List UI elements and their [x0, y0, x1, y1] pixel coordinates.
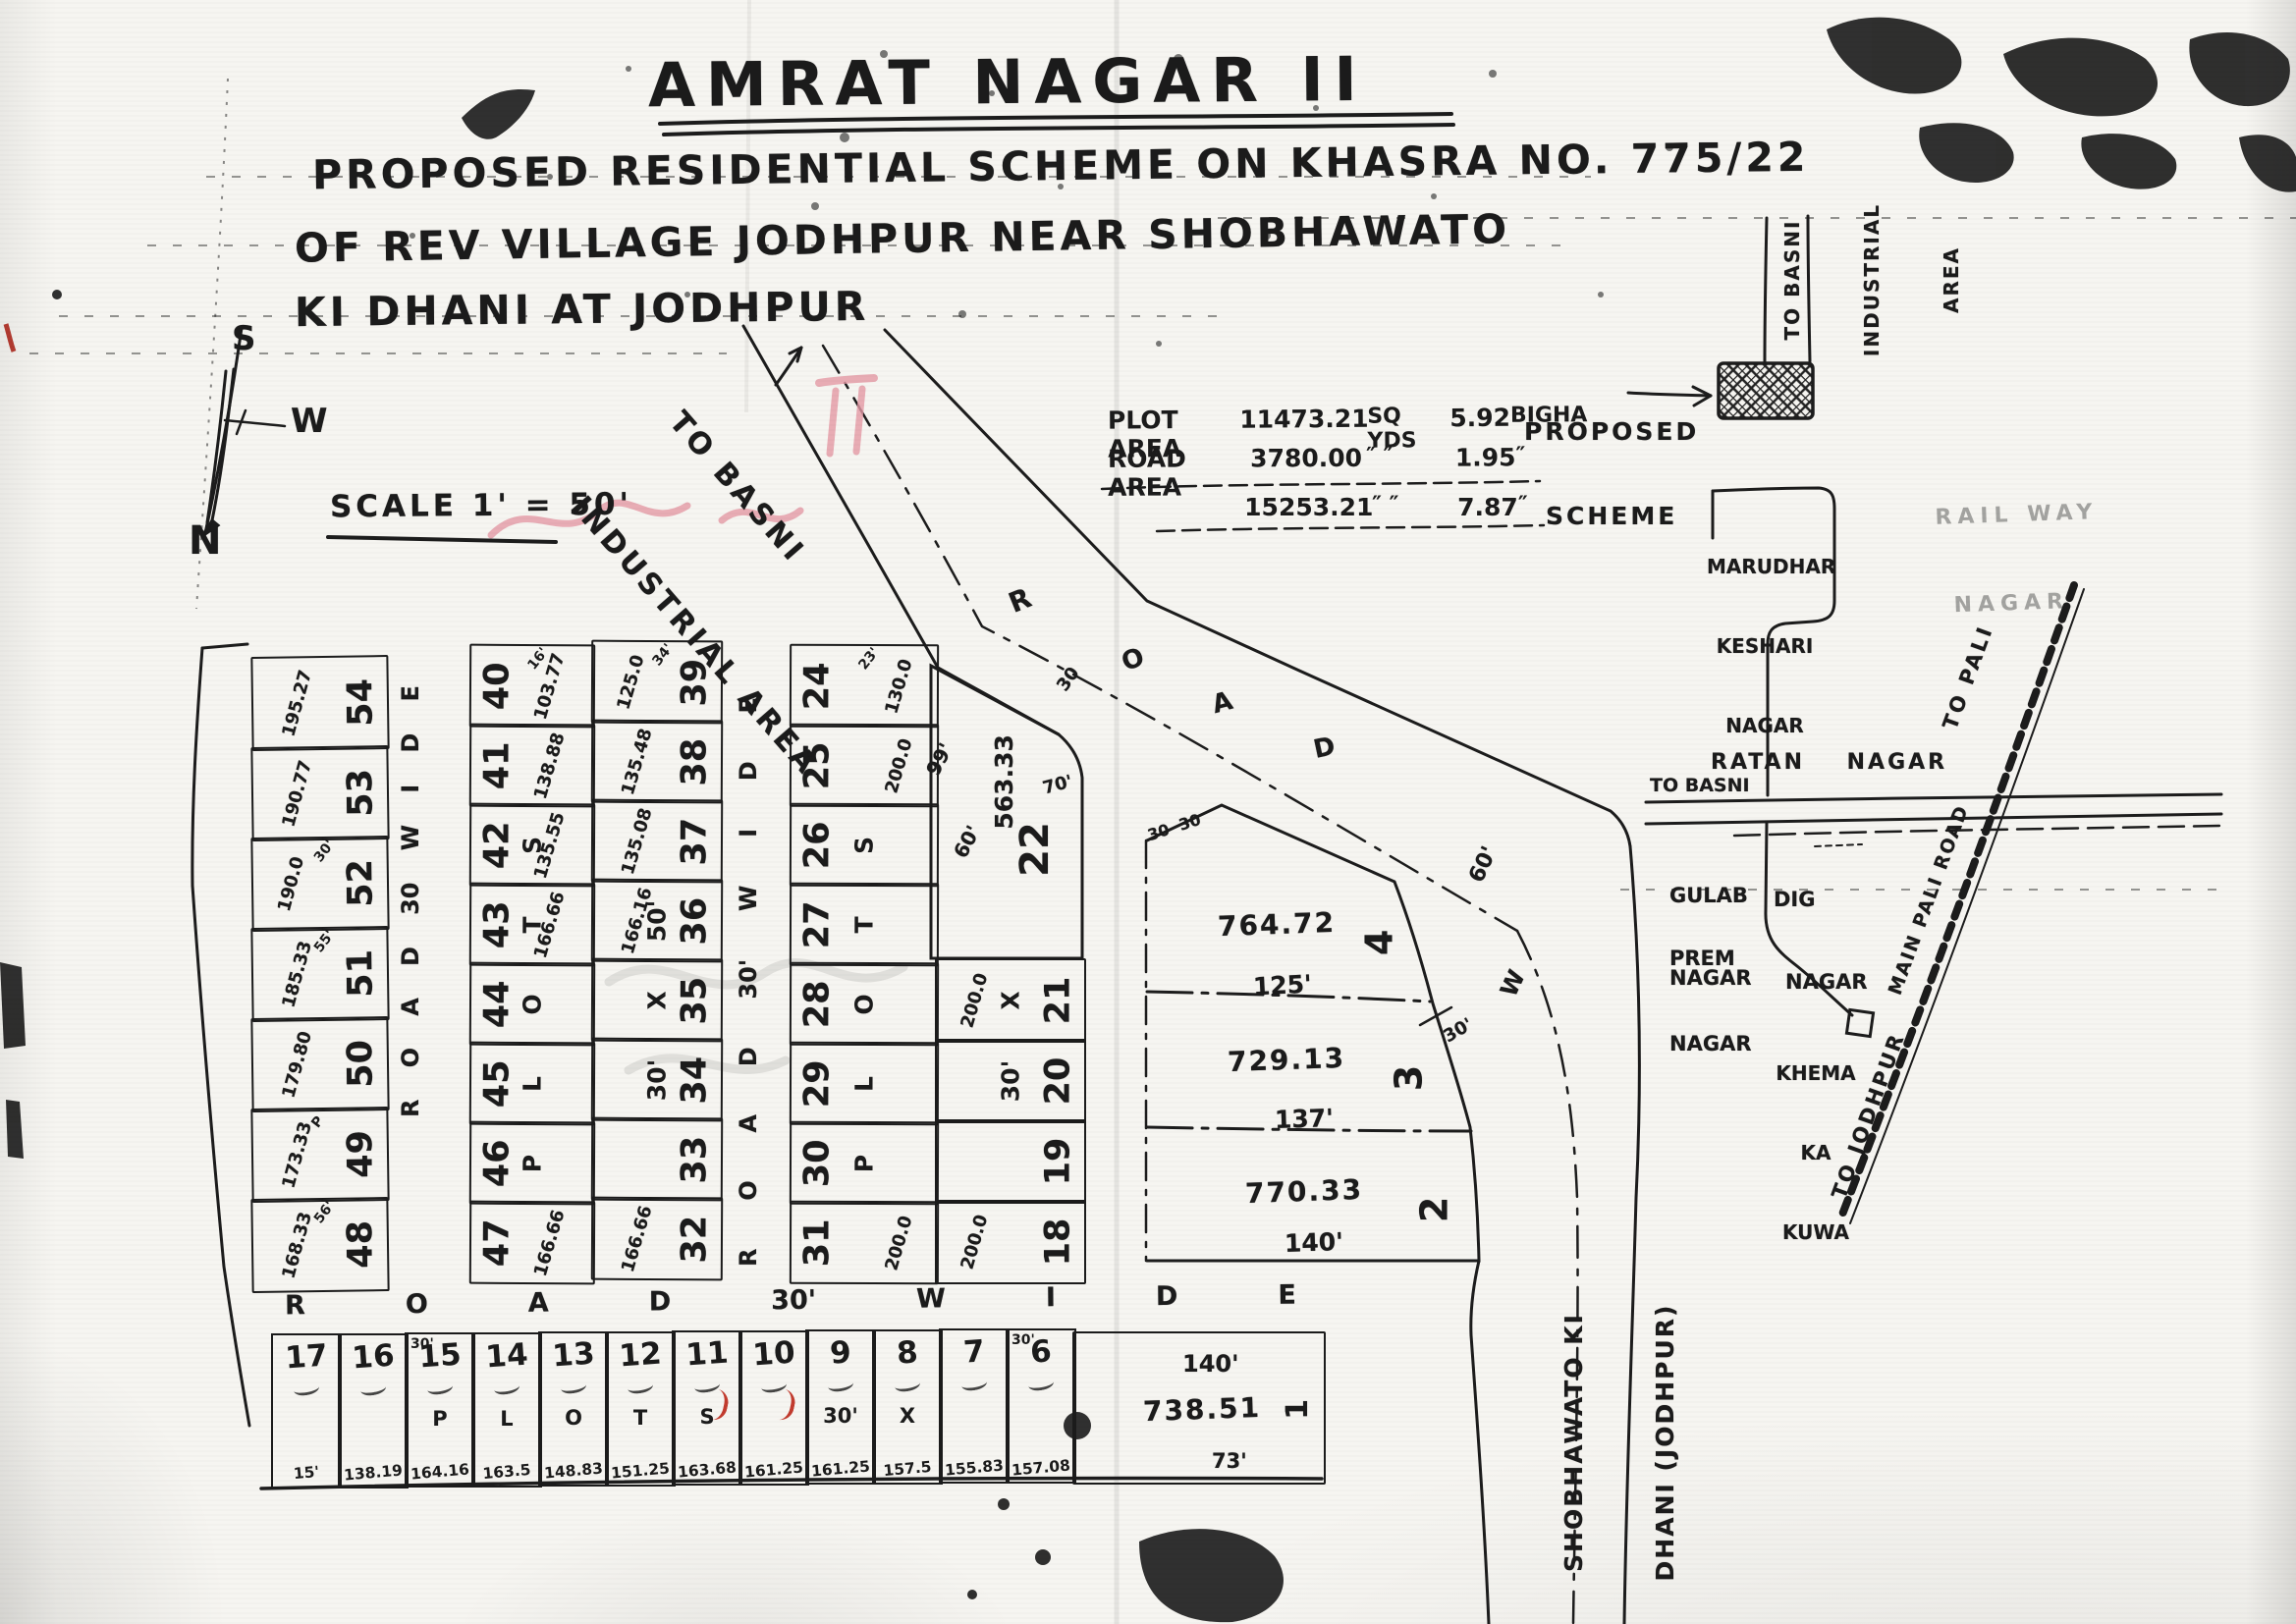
plot-number: 40: [477, 662, 517, 710]
plot-number: 10: [751, 1334, 796, 1373]
plot-number: 14: [484, 1336, 529, 1375]
plot-area: 125.0: [613, 652, 648, 712]
plot-cell-7: 7155.83: [939, 1328, 1010, 1484]
sketch-label-line: MARUDHAR: [1707, 554, 1823, 580]
plot-number: 13: [551, 1336, 596, 1375]
sketch-label-line: KUWA: [1774, 1219, 1858, 1246]
plot-number: 7: [962, 1333, 986, 1370]
plot-dimension-mark: 30': [1011, 1332, 1035, 1348]
plot-number: 19: [1039, 1138, 1078, 1186]
plot-4-area: 764.72: [1217, 907, 1336, 943]
road-label-letter: R: [735, 1249, 762, 1267]
plot-number: 30: [797, 1139, 837, 1187]
prem-nagar-label: PREM NAGAR: [1669, 888, 1752, 1115]
plot-letter: X: [900, 1404, 915, 1428]
red-pen-mark: [772, 1387, 797, 1422]
plot-number: 9: [829, 1334, 852, 1371]
plot-cell-39: 39125.034': [591, 640, 723, 725]
hand-tick-mark: [293, 1380, 320, 1397]
plot-2-area: 770.33: [1244, 1174, 1363, 1210]
plot-area: 155.83: [944, 1456, 1004, 1479]
plot-letter: T: [633, 1406, 647, 1430]
road-label-letter: O: [406, 1288, 428, 1319]
road-label-letter: W: [397, 825, 424, 850]
scanned-map-sheet: AMRAT NAGAR II PROPOSED RESIDENTIAL SCHE…: [0, 0, 2296, 1624]
plot-letter: X: [997, 991, 1025, 1009]
sketch-label-line: KESHARI: [1707, 633, 1823, 660]
plot-number: 52: [341, 859, 381, 907]
plot-number: 33: [676, 1135, 715, 1183]
plot-number: 17: [284, 1338, 329, 1377]
road-label-letter: 30': [735, 959, 762, 1000]
road-label-letter: O: [397, 1048, 424, 1067]
plot-cell-19: 19: [935, 1119, 1086, 1204]
road-label-letter: E: [397, 685, 424, 701]
hand-tick-mark: [894, 1376, 921, 1392]
proposed-scheme-line2: SCHEME: [1546, 503, 1699, 531]
road-label-letter: A: [397, 998, 424, 1016]
plot-area: 179.80: [278, 1029, 315, 1101]
plot-cell-30: 30P: [790, 1121, 939, 1206]
plot-cell-10: 10161.25: [738, 1330, 809, 1486]
plot-area: 161.25: [810, 1457, 870, 1480]
plot-cell-31: 31200.0: [790, 1201, 939, 1285]
plot-letter: P: [849, 1154, 878, 1171]
plot-22-area: 563.33: [991, 734, 1019, 829]
plot-area: 148.83: [543, 1459, 603, 1482]
plot-letter: 30': [642, 1058, 671, 1101]
plot-number: 48: [341, 1220, 381, 1269]
plot-number: 29: [797, 1059, 837, 1108]
red-pen-mark: [705, 1387, 731, 1422]
plot-number: 26: [797, 821, 837, 869]
plot-3-area: 729.13: [1227, 1043, 1345, 1078]
plot-number: 37: [676, 817, 715, 865]
road-label-letter: E: [1278, 1279, 1296, 1310]
plot-number: 45: [477, 1059, 517, 1108]
plot-area: 138.88: [529, 730, 569, 801]
area-row-unit: ″ ″: [1366, 444, 1455, 487]
road-label-letter: O: [735, 1180, 762, 1200]
road-label-line: INDUSTRIAL: [1859, 162, 1886, 398]
plot-letter: O: [565, 1406, 582, 1430]
plot-number: 34: [676, 1056, 715, 1104]
plot-area: 151.25: [610, 1459, 670, 1482]
hand-tick-mark: [560, 1379, 587, 1395]
marudhar-keshari-nagar-label: MARUDHAR KESHARI NAGAR: [1707, 501, 1823, 792]
plot-area: 168.33: [278, 1210, 315, 1281]
sketch-label-line: NAGAR: [1785, 968, 1868, 996]
plot-4-width: 125': [1252, 970, 1312, 1001]
proposed-scheme-label: PROPOSED SCHEME: [1524, 361, 1699, 587]
plot-cell-9: 930'161.25: [805, 1329, 876, 1485]
area-row-value: 11473.21: [1239, 405, 1367, 445]
area-row-value: 3780.00: [1250, 444, 1366, 487]
road-label-letter: D: [735, 1047, 762, 1066]
plot-1-bottom-dim: 73': [1212, 1449, 1247, 1473]
road-label-letter: D: [735, 761, 762, 781]
plot-cell-27: 27T: [790, 883, 939, 967]
plot-dimension-mark: 30': [311, 838, 338, 866]
plot-cell-28: 28O: [790, 962, 939, 1047]
plot-1-area: 738.51: [1142, 1392, 1261, 1428]
road-label-letter: 30: [397, 883, 424, 915]
road-label-letter: I: [735, 829, 762, 838]
area-table-row: ROAD AREA 3780.00 ″ ″ 1.95 ″: [1108, 443, 1569, 488]
road-label-line: AREA: [1939, 162, 1965, 398]
plot-number: 20: [1039, 1057, 1078, 1106]
plot-cell-8: 8X157.5: [872, 1329, 943, 1485]
plot-cell-38: 38135.48: [591, 720, 723, 804]
plot-cell-46: 46P: [469, 1121, 595, 1206]
plot-cell-35: 35X: [591, 958, 723, 1043]
plot-letter: X: [642, 991, 671, 1009]
plot-dimension-mark: 34': [649, 641, 676, 670]
road-label-letter: A: [528, 1287, 549, 1318]
hand-tick-mark: [493, 1379, 520, 1395]
road-label-letter: R: [397, 1100, 424, 1117]
plot-number: 18: [1039, 1218, 1078, 1267]
plot-number: 44: [477, 980, 517, 1028]
plot-area: 200.0: [957, 971, 993, 1031]
plot-letter: P: [518, 1154, 546, 1171]
plot-area: 130.0: [882, 656, 917, 716]
plot-letter: P: [432, 1407, 447, 1431]
plot-number: 49: [341, 1130, 381, 1178]
plot-cell-13: 13O148.83: [538, 1331, 609, 1487]
railway-nagar-label: RAIL WAY NAGAR: [1933, 439, 2104, 680]
plot-cell-11: 11S163.68: [672, 1330, 742, 1486]
compass-north-label: N: [189, 518, 221, 564]
plot-dimension-mark: 23': [855, 645, 882, 674]
road-label-letter: I: [397, 785, 424, 793]
plot-number: 28: [797, 980, 837, 1028]
plot-area: 166.66: [618, 1203, 657, 1274]
plot-letter: T: [518, 916, 546, 933]
plot-letter: L: [518, 1075, 546, 1091]
plot-area: 195.27: [278, 668, 315, 739]
hand-tick-mark: [627, 1378, 654, 1394]
proposed-scheme-line1: PROPOSED: [1524, 418, 1699, 447]
plot-area: 200.0: [882, 735, 917, 795]
plot-area: 200.0: [882, 1213, 917, 1272]
plot-cell-50: 50179.80: [250, 1016, 389, 1112]
plot-number: 25: [797, 741, 837, 789]
area-row-label: ROAD AREA: [1108, 444, 1250, 488]
plot-number: 31: [797, 1218, 837, 1267]
plot-area: 163.5: [482, 1460, 531, 1482]
area-table: PLOT AREA 11473.21 SQ YDS 5.92 BIGHA ROA…: [1108, 405, 1569, 532]
plot-number: 35: [676, 976, 715, 1024]
plot-letter: O: [849, 994, 878, 1014]
plot-cell-47: 47166.66: [469, 1201, 595, 1285]
hand-tick-mark: [1027, 1375, 1055, 1391]
plot-number: 21: [1039, 977, 1078, 1025]
road-label-letter: D: [397, 733, 424, 753]
area-row-unit: SQ YDS: [1367, 404, 1449, 444]
road-label-letter: D: [397, 947, 424, 966]
plot-cell-41: 41138.88: [469, 724, 595, 808]
area-row-label: PLOT AREA: [1108, 406, 1240, 446]
plot-cell-37: 37135.08: [591, 799, 723, 884]
plot-number: 39: [676, 658, 715, 706]
ratan-nagar-label: RATAN NAGAR: [1711, 750, 1947, 775]
plot-number: 8: [896, 1334, 919, 1371]
road-label-letter: R: [285, 1290, 305, 1321]
plot-cell-24: 24130.023': [790, 644, 939, 729]
plot-letter: O: [518, 994, 546, 1014]
plot-cell-21: 21200.0X: [935, 958, 1086, 1043]
area-row-unit: ″ ″: [1372, 493, 1457, 532]
title-line-4: KI DHANI AT JODHPUR: [295, 284, 870, 336]
plot-number: 43: [477, 900, 517, 948]
plot-area: 15': [293, 1463, 320, 1483]
hand-tick-mark: [960, 1376, 988, 1392]
road-label-line: SHOBHAWATO KI: [1558, 1256, 1589, 1624]
plot-cell-25: 25200.0: [790, 724, 939, 808]
road-label-letter: D: [1156, 1280, 1178, 1311]
plot-letter: 30': [997, 1060, 1025, 1102]
red-margin-mark: [6, 324, 14, 352]
plot-area: 166.66: [529, 1207, 569, 1278]
plot-3-number: 3: [1388, 1065, 1431, 1091]
plot-2-number: 2: [1413, 1197, 1456, 1222]
plot-letter: T: [849, 916, 878, 933]
road-30-wide-label-vertical-2: ROAD30'WIDE: [729, 697, 768, 1267]
area-table-row: PLOT AREA 11473.21 SQ YDS 5.92 BIGHA: [1108, 403, 1569, 445]
plot-22-number: 22: [1012, 822, 1058, 877]
plot-area: 135.08: [618, 805, 657, 877]
plot-area: 135.48: [618, 726, 657, 797]
road-label-line: TO BASNI: [1779, 162, 1806, 398]
plot-cell-40: 40103.7716': [469, 644, 595, 729]
shobhawato-ki-dhani-label: SHOBHAWATO KI DHANI (JODHPUR): [1498, 1256, 1558, 1624]
area-row-bigha: 7.87: [1457, 493, 1518, 532]
map-title: AMRAT NAGAR II: [648, 44, 1368, 121]
compass-south-label: S: [232, 320, 256, 358]
plot-cell-36: 36166.1650': [591, 879, 723, 963]
plot-cell-16: 16138.19: [338, 1333, 409, 1489]
sketch-label-line: KHEMA: [1774, 1060, 1858, 1087]
plot-cell-20: 2030': [935, 1039, 1086, 1123]
plot-cell-15: 15P164.1630': [405, 1332, 475, 1488]
plot-area: 200.0: [957, 1213, 993, 1272]
road-label-letter: W: [916, 1283, 946, 1314]
road-label-letter: D: [649, 1286, 672, 1317]
plot-cell-34: 3430': [591, 1038, 723, 1122]
area-row-bigha: 5.92: [1449, 404, 1510, 443]
plot-number: 16: [351, 1337, 396, 1376]
plot-letter: S: [518, 836, 546, 853]
plot-area: 173.33: [278, 1119, 315, 1191]
sketch-label-line: RAIL WAY: [1935, 498, 2099, 533]
sketch-label-line: DIG: [1774, 886, 1868, 913]
plot-area: 190.0: [274, 854, 308, 913]
road-label-letter: E: [735, 697, 762, 713]
plot-cell-48: 48168.3356': [250, 1197, 389, 1293]
plot-number: 42: [477, 821, 517, 869]
plot-area: 161.25: [743, 1458, 803, 1481]
plot-letter: 50': [642, 899, 671, 942]
plot-cell-12: 12T151.25: [605, 1331, 676, 1487]
plot-cell-29: 29L: [790, 1042, 939, 1126]
plot-cell-44: 44O: [469, 962, 595, 1047]
plot-cell-42: 42135.55S: [469, 803, 595, 888]
plot-cell-14: 14L163.5: [471, 1332, 542, 1488]
plot-number: 51: [341, 949, 381, 998]
plot-area: 164.16: [410, 1460, 469, 1483]
hand-tick-mark: [827, 1377, 854, 1393]
plot-cell-26: 26S: [790, 803, 939, 888]
plot-number: 32: [676, 1215, 715, 1263]
plot-dimension-mark: 55': [311, 928, 338, 956]
plot-letter: L: [849, 1075, 878, 1091]
plot-cell-18: 18200.0: [935, 1200, 1086, 1284]
plot-cell-33: 33: [591, 1117, 723, 1202]
plot-1-top-dim: 140': [1182, 1351, 1238, 1379]
hand-tick-mark: [426, 1380, 454, 1396]
plot-3-width: 137': [1275, 1105, 1335, 1135]
plot-number: 12: [618, 1335, 663, 1374]
plot-dimension-mark: 56': [311, 1199, 338, 1227]
sketch-label-line: NAGAR: [1669, 1030, 1752, 1058]
plot-cell-43: 43166.66T: [469, 883, 595, 967]
sketch-label-line: PREM: [1669, 945, 1752, 973]
sketch-label-line: NAGAR: [1953, 586, 2102, 621]
plot-cell-6: 6157.0830': [1006, 1328, 1076, 1484]
sketch-label-line: NAGAR: [1707, 713, 1823, 739]
plot-number: 53: [341, 769, 381, 817]
plot-cell-51: 51185.3355': [250, 926, 389, 1022]
plot-area: 190.77: [278, 758, 315, 830]
plot-area: 163.68: [677, 1458, 737, 1481]
plot-letter: L: [500, 1407, 513, 1431]
to-basni-small-label: TO BASNI: [1650, 776, 1750, 797]
plot-area: 138.19: [343, 1461, 403, 1484]
plot-cell-49: 49173.33P: [250, 1107, 389, 1203]
plot-number: 54: [341, 678, 381, 727]
plot-number: 47: [477, 1218, 517, 1267]
plot-1-number: 1: [1282, 1399, 1316, 1420]
plot-cell-52: 52190.030': [250, 836, 389, 932]
area-row-value: 15253.21: [1244, 493, 1372, 532]
road-label-letter: I: [1046, 1282, 1056, 1313]
plot-cell-53: 53190.77: [250, 745, 389, 841]
plot-dimension-mark: 30': [410, 1336, 434, 1352]
plot-4-number: 4: [1358, 930, 1401, 955]
plot-number: 11: [684, 1335, 730, 1374]
plot-letter: S: [849, 836, 878, 853]
to-basni-industrial-area-vertical-label: TO BASNI INDUSTRIAL AREA: [1726, 162, 1809, 398]
plot-2-width: 140': [1285, 1228, 1344, 1259]
plot-number: 27: [797, 900, 837, 948]
road-label-letter: W: [735, 886, 762, 911]
plot-cell-17: 1715': [271, 1333, 342, 1489]
plot-number: 36: [676, 896, 715, 945]
plot-number: 24: [797, 662, 837, 710]
road-30-wide-label-vertical-1: ROAD30WIDE: [391, 685, 430, 1117]
compass-west-label: W: [291, 403, 328, 441]
plot-area: 157.5: [883, 1457, 932, 1479]
road-label-line: DHANI (JODHPUR): [1650, 1256, 1680, 1624]
plot-cell-54: 54195.27: [250, 655, 389, 751]
plot-number: 46: [477, 1139, 517, 1187]
plot-area: 185.33: [278, 939, 315, 1010]
plot-letter: 30': [823, 1404, 858, 1428]
plot-cell-32: 32166.66: [591, 1197, 723, 1281]
hand-tick-mark: [359, 1380, 387, 1396]
plot-area: 157.08: [1011, 1456, 1070, 1479]
plot-cell-45: 45L: [469, 1042, 595, 1126]
road-label-letter: A: [735, 1114, 762, 1133]
road-label-letter: 30': [771, 1284, 816, 1315]
plot-number: 50: [341, 1040, 381, 1088]
plot-number: 41: [477, 741, 517, 789]
area-row-bigha: 1.95: [1455, 443, 1516, 486]
plot-1-cell: 140' 738.51 73' 1: [1072, 1331, 1326, 1485]
plot-number: 38: [676, 737, 715, 785]
